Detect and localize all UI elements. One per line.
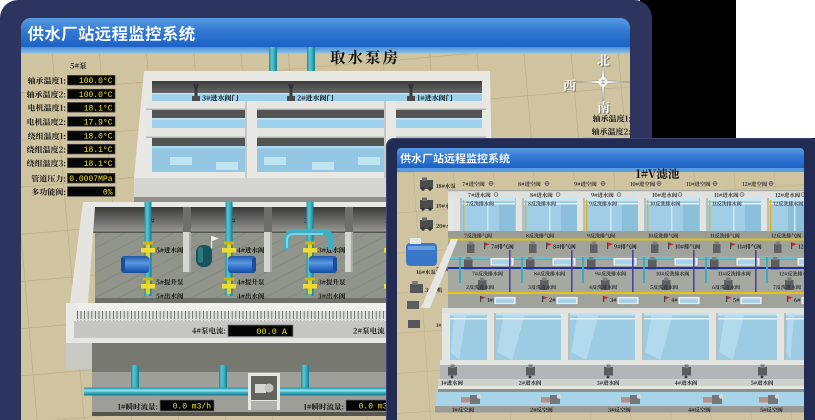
- svg-text:100.0°C: 100.0°C: [79, 91, 113, 100]
- svg-text:0.0 m3/h: 0.0 m3/h: [173, 403, 212, 412]
- svg-text:0.0007MPa: 0.0007MPa: [69, 175, 112, 184]
- svg-text:00.0 A: 00.0 A: [256, 327, 288, 337]
- svg-text:18.1°C: 18.1°C: [84, 146, 113, 155]
- svg-text:0%: 0%: [103, 189, 113, 198]
- svg-text:18.1°C: 18.1°C: [84, 104, 113, 113]
- svg-text:17.9°C: 17.9°C: [84, 119, 113, 128]
- svg-text:18.1°C: 18.1°C: [84, 160, 113, 169]
- svg-text:100.0°C: 100.0°C: [79, 77, 113, 86]
- svg-text:18.0°C: 18.0°C: [84, 133, 113, 142]
